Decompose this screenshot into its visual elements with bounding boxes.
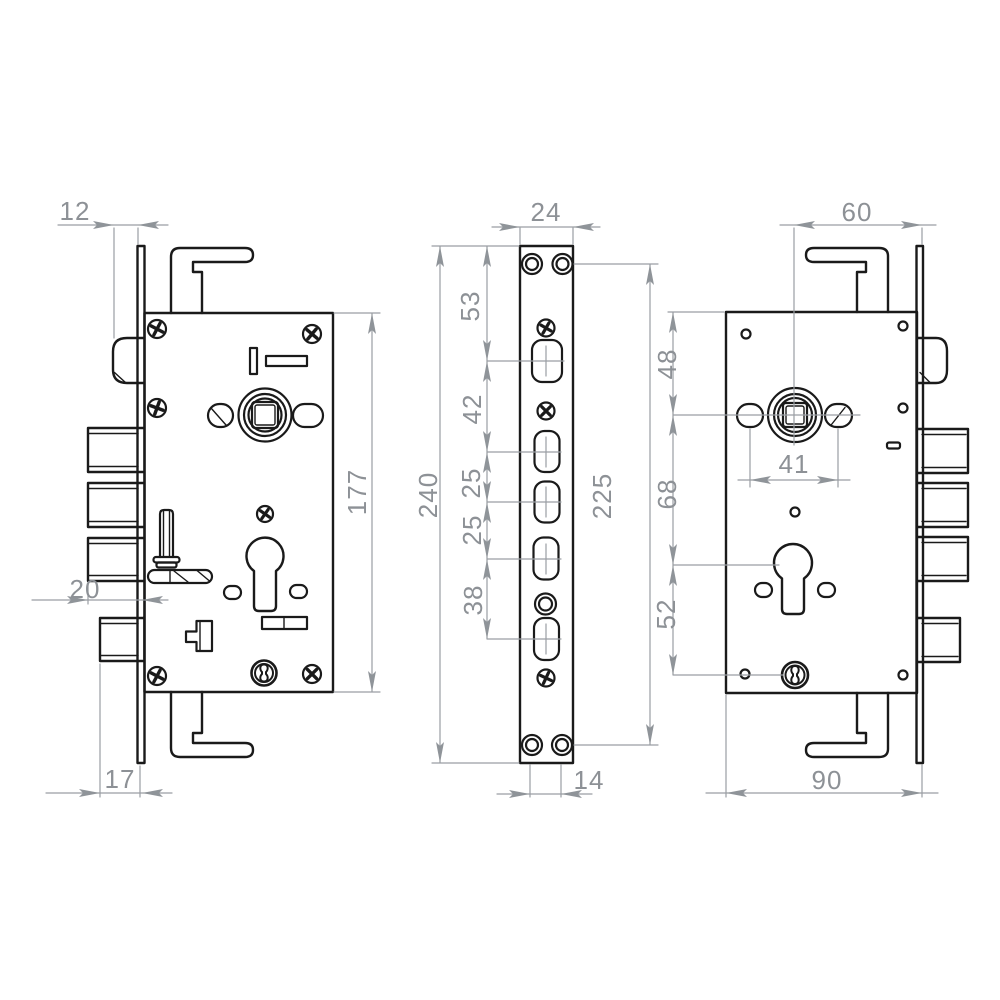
lock-technical-drawing: 12 20 17 177 24 240 53 42 25 25 38 225 1… [0, 0, 1000, 1000]
dim-label-deadbolt-protrusion: 20 [70, 574, 101, 604]
dim-label-body-height: 177 [342, 469, 372, 515]
dim-label-faceplate-width: 24 [531, 197, 562, 227]
mounting-hook-bottom-left [171, 692, 253, 757]
dim-label-spacing-42: 42 [457, 394, 487, 425]
dim-label-spacing-25-lower: 25 [457, 515, 487, 546]
mounting-hook-bottom-right [806, 693, 888, 757]
lock-body-left [145, 313, 334, 692]
dim-label-cylinder-to-adjuster: 52 [651, 599, 681, 630]
adjuster-screw-left [252, 661, 277, 686]
dim-label-spacing-38: 38 [458, 585, 488, 616]
latch-bolt-right [917, 338, 948, 383]
dim-label-top-to-spindle: 48 [652, 349, 682, 380]
latch-bolt-left [113, 338, 145, 383]
dim-label-spacing-25-upper: 25 [456, 468, 486, 499]
lock-body-right [726, 312, 917, 693]
dim-label-backset: 60 [842, 197, 873, 227]
adjuster-screw-right [782, 662, 808, 688]
deadbolt-2-right [917, 483, 969, 527]
dim-label-body-width: 90 [812, 765, 843, 795]
dim-label-latch-protrusion: 12 [60, 196, 91, 226]
drawing-svg: 12 20 17 177 24 240 53 42 25 25 38 225 1… [0, 0, 1000, 1000]
left-view [88, 246, 333, 763]
dim-label-spindle-to-cylinder: 68 [652, 479, 682, 510]
deadbolt-1 [88, 428, 145, 472]
dim-label-bottom-tab: 14 [574, 765, 605, 795]
dim-label-faceplate-length: 240 [413, 472, 443, 518]
deadbolt-2 [88, 483, 145, 527]
deadbolt-3-right [917, 537, 969, 581]
mounting-hook-top-left [171, 248, 253, 313]
dim-label-lower-bolt-protrusion: 17 [105, 764, 136, 794]
dim-label-oval-spacing: 41 [779, 449, 810, 479]
deadbolt-1-right [917, 429, 969, 473]
dim-label-screw-spacing: 225 [587, 473, 617, 519]
mounting-hook-top-right [806, 248, 888, 312]
dim-label-spacing-53: 53 [455, 291, 485, 322]
right-view [726, 246, 968, 763]
